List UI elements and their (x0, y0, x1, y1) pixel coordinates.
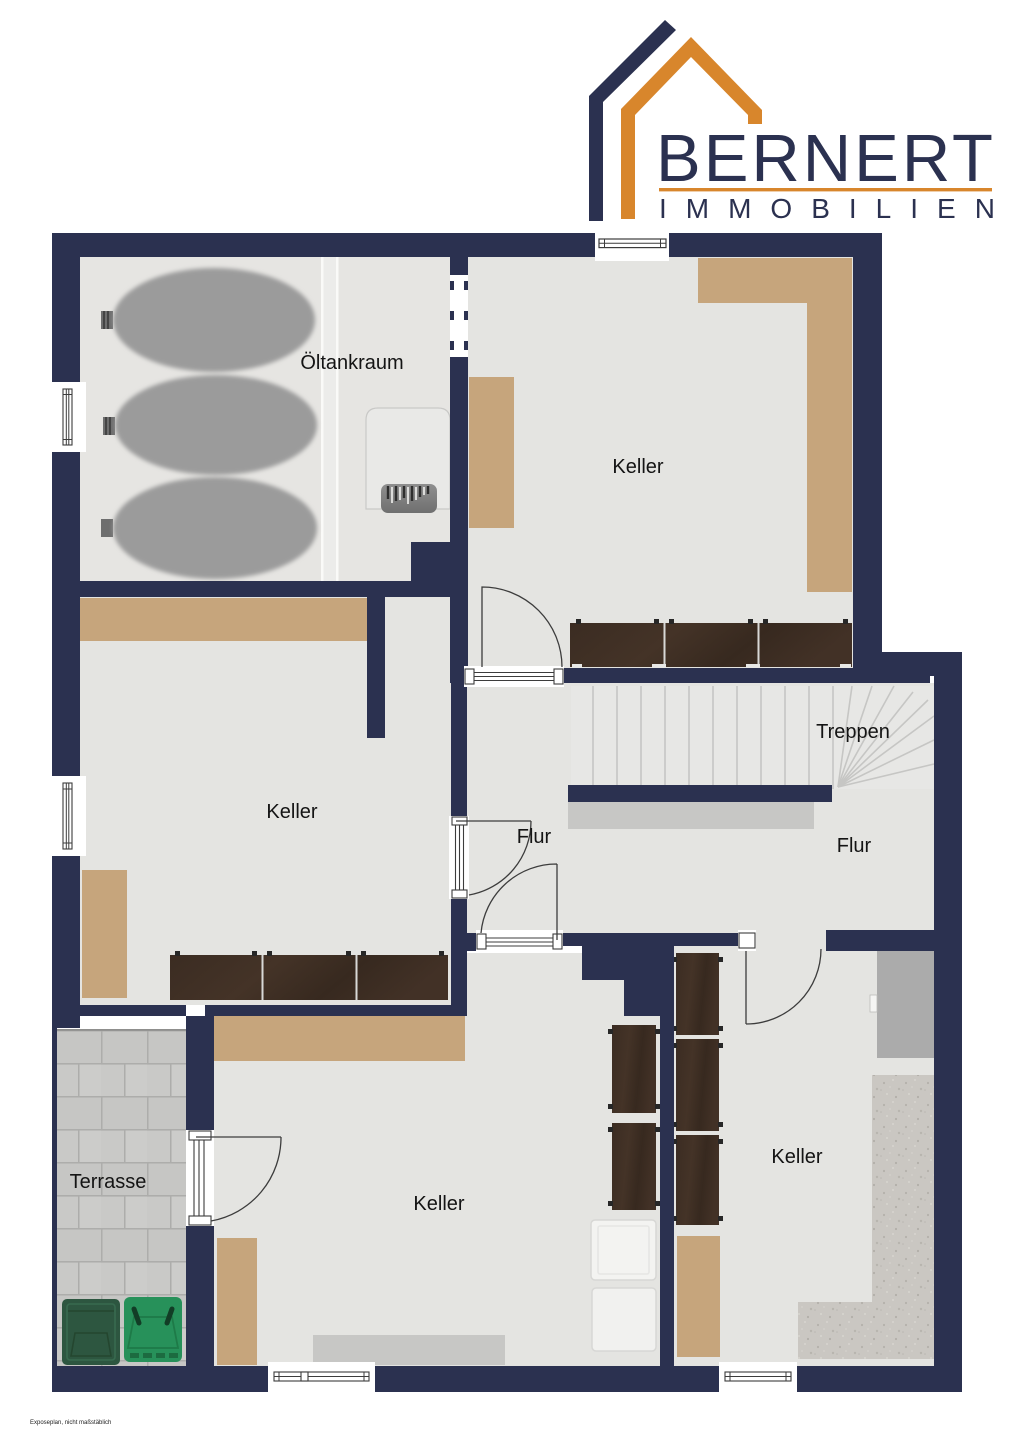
svg-text:IMMOBILIEN: IMMOBILIEN (659, 193, 1014, 224)
svg-text:Keller: Keller (413, 1193, 464, 1215)
svg-text:Terrasse: Terrasse (70, 1171, 147, 1193)
svg-text:Keller: Keller (612, 456, 663, 478)
svg-text:Flur: Flur (517, 826, 552, 848)
svg-text:Exposeplan, nicht maßstäblich: Exposeplan, nicht maßstäblich (30, 1420, 111, 1426)
svg-text:Öltankraum: Öltankraum (300, 352, 403, 374)
svg-text:BERNERT: BERNERT (656, 121, 996, 196)
svg-text:Flur: Flur (837, 835, 872, 857)
svg-text:Treppen: Treppen (816, 721, 890, 743)
svg-text:Keller: Keller (771, 1146, 822, 1168)
svg-text:Keller: Keller (266, 801, 317, 823)
